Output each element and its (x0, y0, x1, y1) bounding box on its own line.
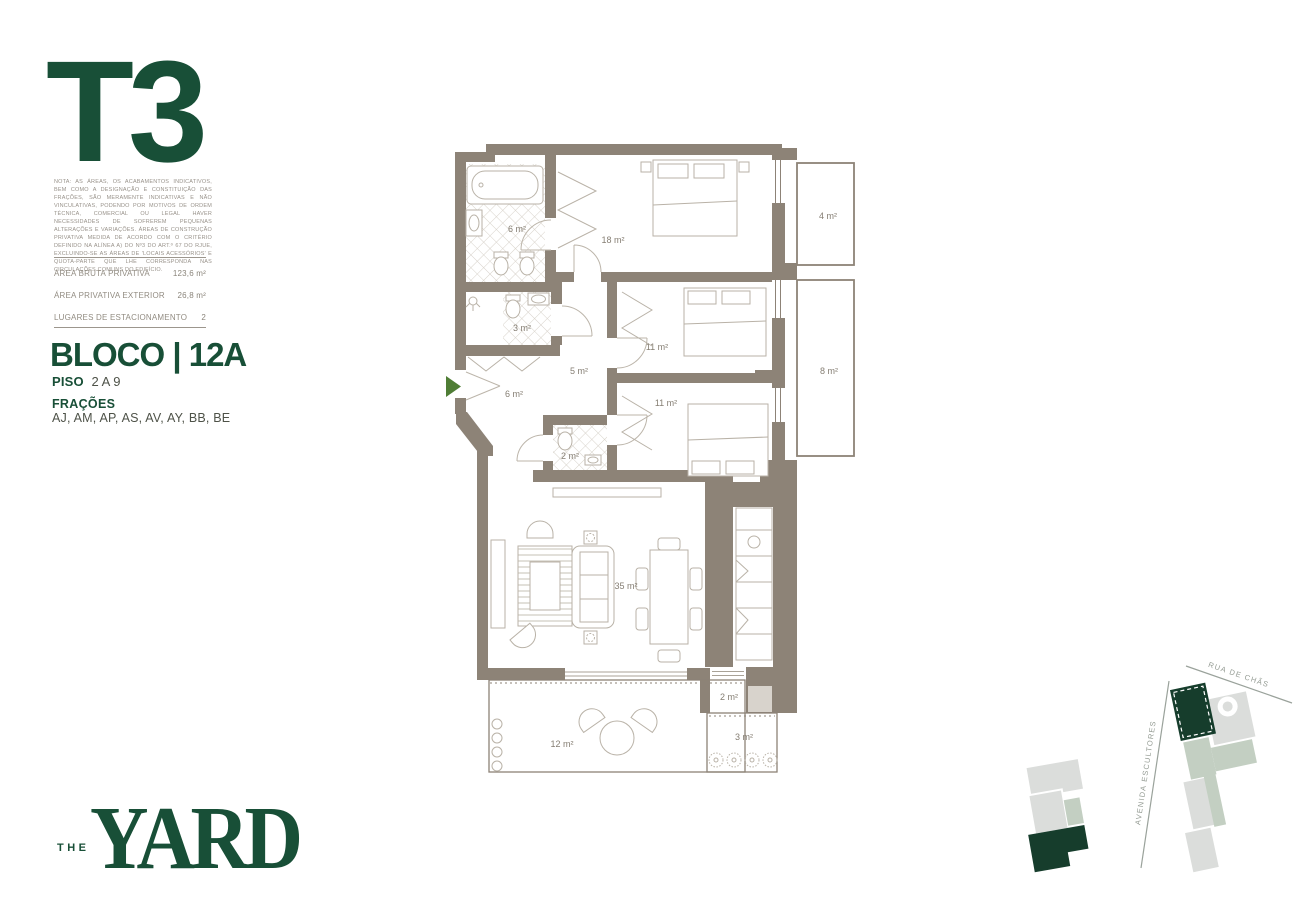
room-label-terrace-1: 12 m² (550, 739, 573, 749)
logo-wordmark: YARD (90, 794, 299, 884)
area-label: LUGARES DE ESTACIONAMENTO (54, 313, 187, 322)
legal-disclaimer: NOTA: AS ÁREAS, OS ACABAMENTOS INDICATIV… (54, 178, 212, 274)
area-value: 123,6 m² (173, 269, 206, 278)
divider-bottom (54, 327, 206, 328)
room-label-bedroom-2: 11 m² (646, 342, 668, 352)
room-label-entry: 6 m² (505, 389, 523, 399)
room-label-bathroom-1: 6 m² (508, 224, 526, 234)
area-row-exterior: ÁREA PRIVATIVA EXTERIOR 26,8 m² (54, 284, 206, 306)
fractions-label: FRAÇÕES (52, 397, 115, 411)
fractions-value: AJ, AM, AP, AS, AV, AY, BB, BE (52, 411, 230, 425)
area-label: ÁREA PRIVATIVA EXTERIOR (54, 291, 165, 300)
floorplan-page: T3 NOTA: AS ÁREAS, OS ACABAMENTOS INDICA… (0, 0, 1296, 920)
wall-recess (748, 686, 772, 712)
room-label-storage: 2 m² (720, 692, 738, 702)
logo-prefix: THE (57, 842, 90, 854)
room-label-wc: 2 m² (561, 451, 579, 461)
building-cluster-left (1017, 759, 1096, 872)
floor-range: PISO 2 A 9 (52, 374, 120, 389)
room-label-bathroom-2: 3 m² (513, 323, 531, 333)
street-label-avenida-escultores: AVENIDA ESCULTORES (1133, 720, 1158, 826)
room-label-balcony-2: 8 m² (820, 366, 838, 376)
balconies (797, 163, 854, 456)
typology-title: T3 (46, 40, 202, 184)
room-label-hall: 5 m² (570, 366, 588, 376)
area-value: 26,8 m² (177, 291, 206, 300)
room-label-balcony-1: 4 m² (819, 211, 837, 221)
entrance-arrow-icon (446, 376, 461, 397)
block-title: BLOCO | 12A (50, 336, 246, 374)
area-summary: ÁREA BRUTA PRIVATIVA 123,6 m² ÁREA PRIVA… (54, 262, 206, 328)
room-label-living-room: 35 m² (614, 581, 637, 591)
floor-range-label: PISO (52, 374, 84, 389)
room-label-bedroom-1: 18 m² (601, 235, 624, 245)
site-map: RUA DE CHÃS AVENIDA ESCULTORES (1010, 645, 1296, 900)
floor-plan: 6 m² 18 m² 4 m² 3 m² 5 m² 6 m² 11 m² 11 … (440, 135, 870, 785)
area-row-bruta: ÁREA BRUTA PRIVATIVA 123,6 m² (54, 262, 206, 284)
divider-top (54, 257, 206, 258)
room-label-terrace-2: 3 m² (735, 732, 753, 742)
area-row-estacionamento: LUGARES DE ESTACIONAMENTO 2 (54, 306, 206, 328)
building-cluster-right (1155, 675, 1280, 873)
area-value: 2 (201, 313, 206, 322)
area-label: ÁREA BRUTA PRIVATIVA (54, 269, 150, 278)
floor-range-value: 2 A 9 (92, 374, 121, 389)
room-label-bedroom-3: 11 m² (655, 398, 677, 408)
